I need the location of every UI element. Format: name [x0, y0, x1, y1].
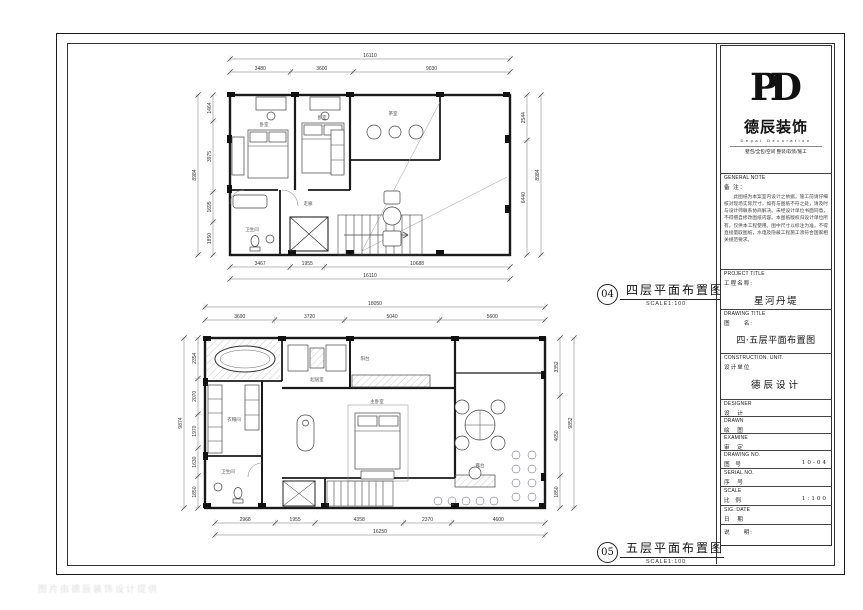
room-label: 茶室 [389, 110, 398, 116]
general-note-section: GENERAL NOTE 备 注： 此图纸为本案室内设计之依据，施工前请仔细核对… [721, 173, 831, 269]
dimension-chain: 9874 [178, 335, 187, 510]
scale-label-cn: 比 例 [724, 496, 741, 504]
dim-label: 3690 [234, 314, 245, 320]
floor4-roof-slope-lines [362, 102, 507, 251]
room-label: 卧室 [318, 114, 327, 121]
dimension-chain: 3690372050405600 [202, 314, 547, 323]
dim-label: 9030 [426, 66, 437, 72]
floor5-callout-title: 五层平面布置图 [620, 539, 724, 558]
dim-label: 10688 [410, 261, 424, 267]
dim-label: 2544 [521, 112, 527, 123]
dimension-chain: 29681955435823704600 [212, 517, 547, 526]
dim-label: 3720 [304, 314, 315, 320]
remark-section: 说 明: [721, 524, 831, 545]
floor4-callout-scale: SCALE1:100 [620, 301, 724, 307]
room-label: 卫生间 [245, 226, 259, 233]
dimension-chain: 16250 [212, 529, 547, 538]
dim-label: 2070 [192, 391, 198, 402]
stairs [338, 215, 422, 255]
room-label: 起居室 [310, 376, 324, 383]
dim-label: 1464 [207, 102, 213, 113]
dim-label: 9874 [178, 417, 184, 428]
date-label-cn: 日 期 [724, 515, 828, 523]
floor5-elevator [283, 481, 315, 506]
floor4-plan: 1611034803600903034671955106881611014643… [160, 45, 580, 295]
project-title-section: PROJECT TITLE 工程名称: 星河丹堤 [721, 269, 831, 309]
designer-label-en: DESIGNER [724, 401, 828, 407]
dim-label: 8984 [535, 169, 541, 180]
dim-label: 1850 [192, 486, 198, 497]
brand-name-en: Depal Decoration [724, 138, 828, 143]
dimension-chain: 23542070197016301850 [192, 335, 201, 510]
dim-label: 6440 [521, 192, 527, 203]
dim-label: 5600 [487, 314, 498, 320]
brand-services: 墅包/全包/空间 整装/软装/施工 [730, 146, 822, 155]
dim-label: 8984 [192, 169, 198, 180]
dim-label: 1970 [192, 425, 198, 436]
serial-no-section: SERIAL NO. 序 号 [721, 468, 831, 486]
dimension-chain: 1464397516951850 [207, 92, 216, 257]
scale-section: SCALE 比 例 1:100 [721, 486, 831, 505]
balcony-wardrobe [352, 375, 430, 387]
remark-label-cn: 说 明: [724, 528, 828, 536]
drawing-name: 四·五层平面布置图 [724, 333, 828, 346]
floor5-stairs [327, 481, 393, 506]
dim-label: 1695 [207, 201, 213, 212]
dim-label: 1850 [554, 486, 560, 497]
room-label: 主卧室 [370, 398, 384, 405]
dimension-chain: 335246501850 [554, 335, 563, 510]
drawing-no-section: DRAWING NO. 图 号 10-04 [721, 450, 831, 468]
dimension-chain: 8984 [535, 92, 544, 257]
drawing-title-section: DRAWING TITLE 图 名: 四·五层平面布置图 [721, 309, 831, 353]
dim-label: 2354 [192, 352, 198, 363]
floor4-callout-body: 四层平面布置图 SCALE1:100 [620, 281, 724, 307]
drawing-no-label-cn: 图 号 [724, 460, 741, 468]
room-label: 衣帽间 [227, 416, 241, 423]
project-name: 星河丹堤 [724, 293, 828, 307]
drawn-label-cn: 绘 图 [724, 426, 828, 434]
general-note-label-en: GENERAL NOTE [724, 175, 828, 181]
dim-label: 1955 [302, 261, 313, 267]
dim-label: 18050 [368, 301, 382, 307]
terrace-furniture [455, 400, 505, 487]
sitting-chairs [383, 191, 401, 246]
designer-section: DESIGNER 设 计 [721, 399, 831, 416]
elevator [290, 217, 328, 251]
dim-label: 9852 [568, 417, 574, 428]
scale-label-en: SCALE [724, 488, 828, 494]
floor5-callout: 05 五层平面布置图 SCALE1:100 [597, 539, 717, 565]
floor5-callout-number: 05 [597, 542, 618, 563]
dim-label: 3600 [316, 66, 327, 72]
brand-logo: PD [724, 69, 828, 106]
dim-label: 5040 [386, 314, 397, 320]
brand-area: PD 德辰装饰 Depal Decoration 墅包/全包/空间 整装/软装/… [721, 46, 831, 173]
construction-unit-section: CONSTRUCTION. UNIT. 设计单位 德辰设计 [721, 353, 831, 399]
date-label-en: SIG. DATE [724, 507, 828, 513]
dim-label: 4600 [493, 517, 504, 523]
dimension-chain: 16110 [227, 53, 512, 62]
bed-furniture [232, 97, 344, 178]
master-bed [348, 405, 408, 481]
room-label: 卧室 [260, 121, 269, 128]
examine-label-cn: 审 定 [724, 443, 828, 451]
date-section: SIG. DATE 日 期 [721, 505, 831, 524]
dim-label: 16110 [363, 53, 377, 59]
dim-label: 16250 [373, 529, 387, 535]
examine-label-en: EXAMINE [724, 435, 828, 441]
brand-name-cn: 德辰装饰 [724, 116, 828, 137]
dim-label: 4358 [354, 517, 365, 523]
dim-label: 1630 [192, 456, 198, 467]
room-label: 卫生间 [221, 468, 235, 475]
room-label: 阳台 [361, 355, 370, 362]
dim-label: 2370 [422, 517, 433, 523]
examine-section: EXAMINE 审 定 [721, 433, 831, 450]
dim-label: 1850 [207, 233, 213, 244]
dimension-chain: 9852 [568, 335, 577, 510]
drawing-title-label-cn: 图 名: [724, 319, 828, 327]
room-label: 露台 [476, 462, 485, 469]
tea-room-chairs [367, 125, 423, 139]
floor4-callout-number: 04 [597, 284, 618, 305]
dim-label: 3352 [554, 361, 560, 372]
general-note-body: 此图纸为本案室内设计之依据，施工前请仔细核对现场实际尺寸，如有与图纸不符之处，请… [724, 193, 828, 244]
dimension-chain: 8984 [192, 92, 201, 257]
dim-label: 3467 [255, 261, 266, 267]
general-note-label-cn: 备 注： [724, 183, 828, 191]
drawing-no-label-en: DRAWING NO. [724, 452, 828, 458]
dim-label: 3975 [207, 151, 213, 162]
dim-label: 16110 [363, 273, 377, 279]
scale-value: 1:100 [802, 496, 828, 504]
floor5-callout-scale: SCALE1:100 [620, 559, 724, 565]
dimension-chain: 3467195510688 [227, 261, 512, 270]
drawing-no-value: 10-04 [802, 460, 828, 468]
floor4-callout-title: 四层平面布置图 [620, 281, 724, 300]
unit-label-cn: 设计单位 [724, 363, 828, 371]
serial-no-label-en: SERIAL NO. [724, 470, 828, 476]
floor5-callout-body: 五层平面布置图 SCALE1:100 [620, 539, 724, 565]
dimension-chain: 16110 [227, 273, 512, 282]
drawing-sheet: 1611034803600903034671955106881611014643… [0, 0, 863, 610]
dimension-chain: 18050 [202, 301, 547, 310]
massage-bed [297, 415, 314, 451]
floor5-plan: 1805036903720504056002968195543582370460… [150, 293, 595, 563]
title-block: PD 德辰装饰 Depal Decoration 墅包/全包/空间 整装/软装/… [720, 45, 832, 546]
room-label: 走廊 [304, 200, 313, 207]
bathroom-fixtures [230, 190, 298, 251]
dim-label: 3480 [255, 66, 266, 72]
dimension-chain: 25446440 [521, 92, 530, 257]
drawing-title-label-en: DRAWING TITLE [724, 311, 828, 317]
spa-bath [207, 340, 280, 379]
project-title-label-cn: 工程名称: [724, 279, 828, 287]
watermark: 图片由德辰装饰设计提供 [38, 582, 159, 595]
drawn-section: DRAWN 绘 图 [721, 416, 831, 433]
dimension-chain: 348036009030 [227, 66, 512, 75]
project-title-label-en: PROJECT TITLE [724, 271, 828, 277]
floor4-callout: 04 四层平面布置图 SCALE1:100 [597, 281, 717, 307]
drawn-label-en: DRAWN [724, 418, 828, 424]
serial-no-label-cn: 序 号 [724, 478, 828, 486]
dim-label: 4650 [554, 430, 560, 441]
dim-label: 1955 [290, 517, 301, 523]
unit-name: 德辰设计 [724, 377, 828, 391]
unit-label-en: CONSTRUCTION. UNIT. [724, 355, 828, 361]
dim-label: 2968 [240, 517, 251, 523]
designer-label-cn: 设 计 [724, 409, 828, 417]
sitting-room-furniture [288, 345, 346, 371]
